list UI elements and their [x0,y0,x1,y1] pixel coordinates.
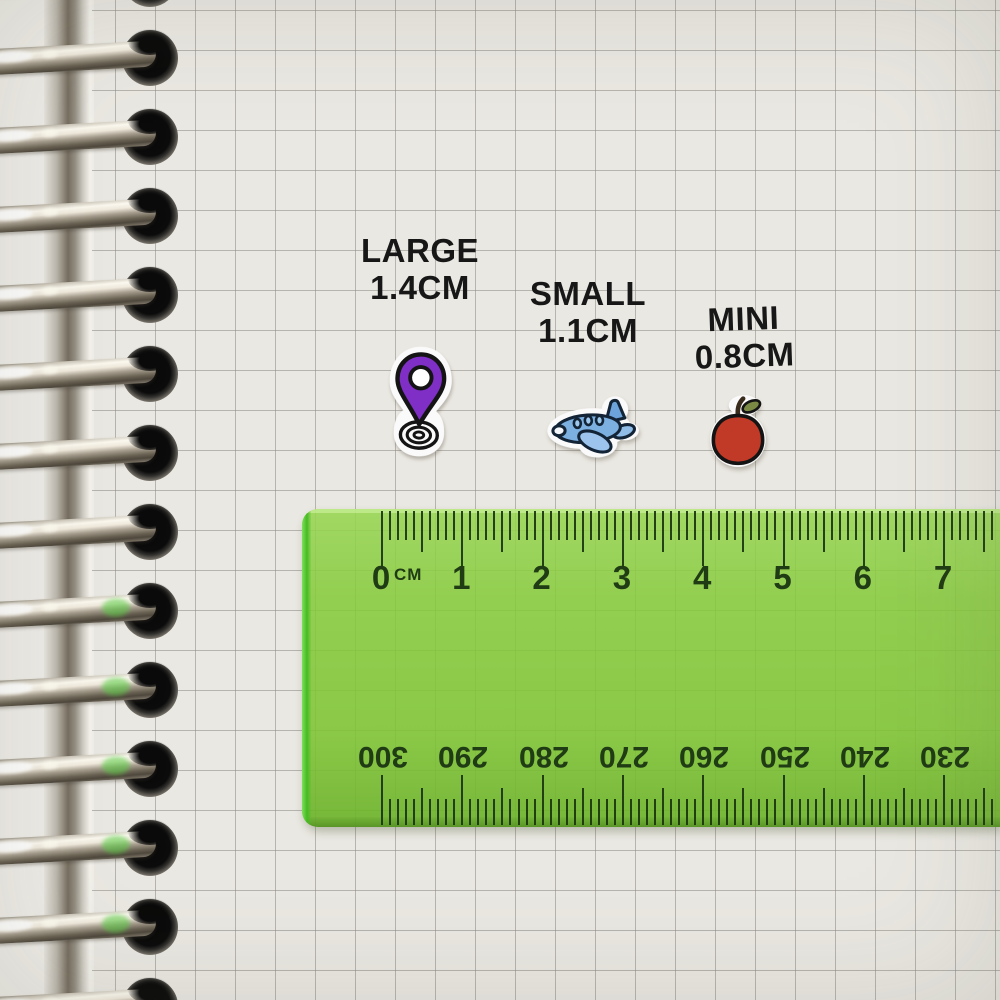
ring-highlight [0,603,33,616]
ruler-tick [678,799,680,825]
ruler-tick [943,775,945,825]
ruler-tick [758,799,760,825]
ring-highlight [42,761,58,770]
ruler-tick [638,511,640,540]
ruler-tick [566,799,568,825]
punch-hole-shadow [128,108,172,134]
ruler-tick [927,799,929,825]
ruler-tick [542,775,544,825]
ruler-tick [501,788,503,825]
binder-ring-back [0,550,10,586]
ruler-tick [831,799,833,825]
binder-ring-back [0,76,10,112]
ruler-tick [526,799,528,825]
ruler-tick [750,511,752,540]
ruler-tick [935,799,937,825]
ruler-tick [662,511,664,552]
ruler-tick [879,511,881,540]
ruler-tick [887,511,889,540]
ruler-tick [783,511,785,566]
ruler-tick [453,799,455,825]
ruler-tick [566,511,568,540]
ring-highlight [42,445,58,454]
ruler-tick [558,511,560,540]
ruler-tick [686,799,688,825]
ring-highlight [0,919,33,932]
binder-ring-back [0,234,10,270]
ruler-tick [389,511,391,540]
ruler-cm-number: 5 [758,559,808,597]
ruler-tick [823,788,825,825]
ruler-cm-number: 6 [838,559,888,597]
ruler-tick [975,799,977,825]
ruler-tick [670,799,672,825]
ruler: CM 01234567 300290280270260250240230 [302,509,1000,827]
ruler-tick [823,511,825,552]
ring-highlight [0,682,33,695]
ruler-tick [501,511,503,552]
ring-green-reflection [101,677,130,696]
punch-hole-shadow [128,424,172,450]
ruler-tick [662,788,664,825]
ruler-tick [783,775,785,825]
ruler-tick [646,511,648,540]
ruler-tick [959,799,961,825]
ruler-tick [429,799,431,825]
ruler-tick [534,799,536,825]
ruler-tick [413,799,415,825]
binder-ring-back [0,866,10,902]
ruler-tick [461,511,463,566]
ring-highlight [0,524,33,537]
ruler-tick [855,799,857,825]
binder-ring-back [0,392,10,428]
ruler-tick [670,511,672,540]
ruler-tick [791,799,793,825]
ruler-tick [831,511,833,540]
ruler-tick [774,799,776,825]
ruler-tick [445,511,447,540]
ruler-tick [542,511,544,566]
ruler-mm-number: 290 [423,739,503,773]
ruler-tick [469,511,471,540]
binder-ring-back [0,708,10,744]
ruler-cm-number: 4 [677,559,727,597]
ruler-tick [558,799,560,825]
ring-green-reflection [101,835,130,854]
ruler-tick [935,511,937,540]
ruler-tick [461,775,463,825]
ruler-tick [863,775,865,825]
binder-ring-back [0,313,10,349]
ruler-tick [839,799,841,825]
mini-size: 0.8CM [634,333,855,378]
ruler-tick [879,799,881,825]
ring-highlight [42,50,58,59]
ruler-tick [959,511,961,540]
punch-hole-shadow [128,661,172,687]
ruler-tick [815,511,817,540]
ruler-tick [614,511,616,540]
ring-highlight [42,208,58,217]
ruler-tick [774,511,776,540]
ruler-tick [654,511,656,540]
punch-hole-shadow [128,503,172,529]
ruler-mm-number: 260 [664,739,744,773]
ruler-tick [895,799,897,825]
ruler-cm-number: 1 [436,559,486,597]
ring-green-reflection [101,914,130,933]
ring-highlight [42,287,58,296]
ruler-tick [871,511,873,540]
ruler-tick [654,799,656,825]
ruler-tick [911,799,913,825]
ruler-cm-number: 2 [517,559,567,597]
ruler-tick [574,511,576,540]
ruler-tick [397,799,399,825]
ruler-tick [967,511,969,540]
ruler-tick [975,511,977,540]
ruler-tick [991,799,993,825]
ruler-tick [919,799,921,825]
ruler-tick [742,788,744,825]
ruler-tick [405,511,407,540]
ruler-tick [742,511,744,552]
apple-sticker [706,393,770,468]
ruler-mm-number: 270 [584,739,664,773]
ruler-tick [863,511,865,566]
ruler-tick [758,511,760,540]
ruler-tick [590,511,592,540]
ruler-tick [702,775,704,825]
notebook-photo: LARGE 1.4CM SMALL 1.1CM MINI 0.8CM [0,0,1000,1000]
ruler-tick [943,511,945,566]
ruler-mm-number: 250 [745,739,825,773]
ring-highlight [42,840,58,849]
punch-hole-shadow [128,266,172,292]
ruler-tick [686,511,688,540]
ruler-mm-number: 300 [343,739,423,773]
ruler-tick [855,511,857,540]
grid-paper [92,0,1000,1000]
ruler-tick [967,799,969,825]
ruler-tick [397,511,399,540]
ruler-tick [413,511,415,540]
punch-hole-shadow [128,29,172,55]
ruler-tick [477,511,479,540]
ruler-tick [799,511,801,540]
ruler-tick [847,799,849,825]
ruler-tick [903,511,905,552]
airplane-sticker [541,394,642,466]
spiral-binding [0,0,220,1000]
ruler-tick [951,511,953,540]
ruler-tick [582,511,584,552]
punch-hole-shadow [128,819,172,845]
ruler-tick [646,799,648,825]
punch-hole-shadow [128,740,172,766]
punch-hole-shadow [128,187,172,213]
ruler-tick [734,799,736,825]
ring-highlight [0,366,33,379]
ruler-tick [839,511,841,540]
ruler-tick [815,799,817,825]
ruler-tick [389,799,391,825]
ruler-tick [919,511,921,540]
ruler-tick [550,799,552,825]
ruler-mm-number: 280 [504,739,584,773]
ruler-tick [702,511,704,566]
ruler-tick [951,799,953,825]
ruler-tick [622,511,624,566]
ruler-tick [381,511,383,566]
ruler-tick [421,788,423,825]
ruler-tick [871,799,873,825]
ruler-tick [799,799,801,825]
ruler-tick [518,799,520,825]
ruler-tick [485,799,487,825]
ruler-tick [509,511,511,540]
ruler-tick [807,511,809,540]
ruler-tick [710,511,712,540]
punch-hole-icon [122,0,178,7]
ring-highlight [0,840,33,853]
ruler-tick [710,799,712,825]
ring-highlight [42,366,58,375]
ring-highlight [42,682,58,691]
ring-highlight [0,761,33,774]
ruler-tick [726,511,728,540]
ruler-tick [606,799,608,825]
ruler-tick [526,511,528,540]
ruler-tick [718,511,720,540]
ruler-tick [903,788,905,825]
ruler-tick [983,511,985,552]
ring-highlight [0,50,33,63]
ruler-tick [718,799,720,825]
mini-size-label: MINI 0.8CM [633,296,855,378]
ruler-mm-number: 240 [825,739,905,773]
ruler-mm-number: 230 [905,739,985,773]
airplane-icon [541,394,642,466]
ring-highlight [42,129,58,138]
binder-ring-back [0,155,10,191]
ruler-tick [453,511,455,540]
ruler-tick [477,799,479,825]
ruler-tick [750,799,752,825]
binder-ring-back [0,0,10,33]
ruler-tick [485,511,487,540]
binder-ring-back [0,945,10,981]
ring-highlight [0,445,33,458]
ruler-tick [381,775,383,825]
binder-ring-back [0,787,10,823]
ring-highlight [0,287,33,300]
ruler-tick [445,799,447,825]
ruler-tick [509,799,511,825]
ruler-tick [606,511,608,540]
punch-hole-shadow [128,345,172,371]
ruler-tick [638,799,640,825]
ruler-cm-number: 3 [597,559,647,597]
ring-highlight [42,603,58,612]
ruler-tick [622,775,624,825]
large-name: LARGE [310,232,530,269]
ruler-tick [630,799,632,825]
ruler-tick [518,511,520,540]
ruler-tick [429,511,431,540]
ruler-tick [598,511,600,540]
ruler-tick [807,799,809,825]
ruler-tick [791,511,793,540]
punch-hole-shadow [128,977,172,1000]
ruler-cm-number: 0 [356,559,406,597]
ruler-tick [493,799,495,825]
ruler-left-edge [302,509,311,827]
ruler-tick [493,511,495,540]
ruler-tick [582,788,584,825]
ring-highlight [42,524,58,533]
ring-highlight [0,208,33,221]
apple-icon [706,393,770,468]
ruler-tick [598,799,600,825]
binder-ring-back [0,471,10,507]
ruler-tick [991,511,993,540]
ruler-tick [911,511,913,540]
ring-green-reflection [101,756,130,775]
ruler-tick [574,799,576,825]
ruler-tick [590,799,592,825]
punch-hole-shadow [128,898,172,924]
punch-hole-shadow [128,582,172,608]
ruler-tick [694,511,696,540]
ruler-tick [614,799,616,825]
ruler-tick [534,511,536,540]
ring-highlight [42,919,58,928]
ruler-tick [550,511,552,540]
ruler-tick [437,799,439,825]
ruler-tick [630,511,632,540]
binder-ring-back [0,629,10,665]
ruler-tick [726,799,728,825]
ruler-tick [766,511,768,540]
ruler-tick [469,799,471,825]
ruler-tick [678,511,680,540]
location-pin-icon [384,342,456,462]
ruler-tick [927,511,929,540]
ruler-tick [895,511,897,540]
ring-green-reflection [101,598,130,617]
ruler-tick [421,511,423,552]
ring-highlight [0,129,33,142]
ruler-tick [887,799,889,825]
ruler-cm-number: 7 [918,559,968,597]
ruler-tick [766,799,768,825]
ruler-tick [405,799,407,825]
ruler-tick [847,511,849,540]
location-pin-sticker [384,342,456,462]
ruler-tick [734,511,736,540]
ruler-tick [694,799,696,825]
ruler-tick [983,788,985,825]
ruler-tick [437,511,439,540]
